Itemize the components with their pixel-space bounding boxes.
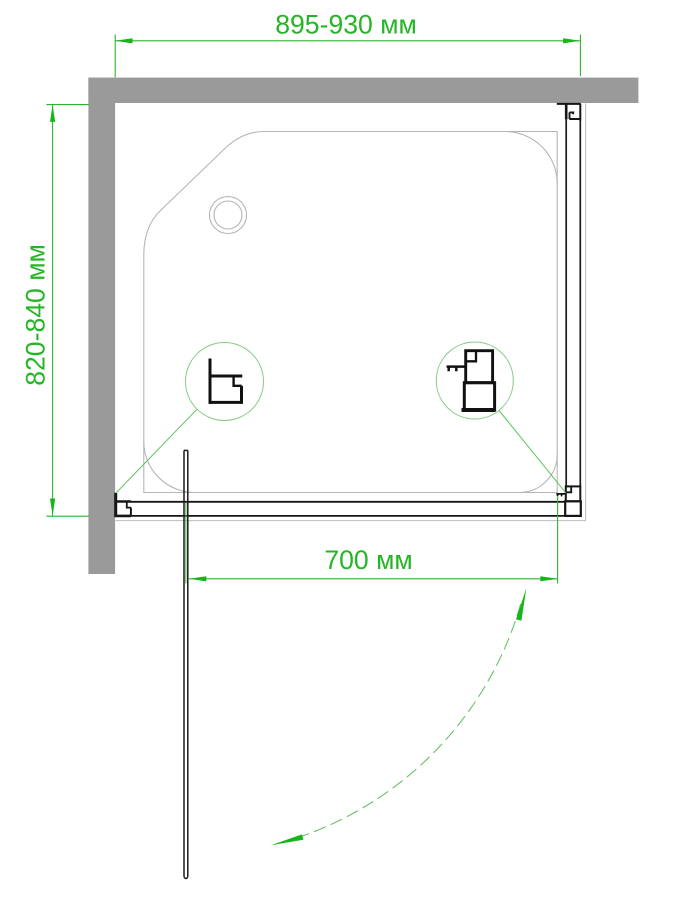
svg-text:895-930 мм: 895-930 мм — [275, 10, 417, 40]
svg-text:820-840 мм: 820-840 мм — [21, 244, 51, 386]
svg-text:700 мм: 700 мм — [324, 545, 412, 575]
